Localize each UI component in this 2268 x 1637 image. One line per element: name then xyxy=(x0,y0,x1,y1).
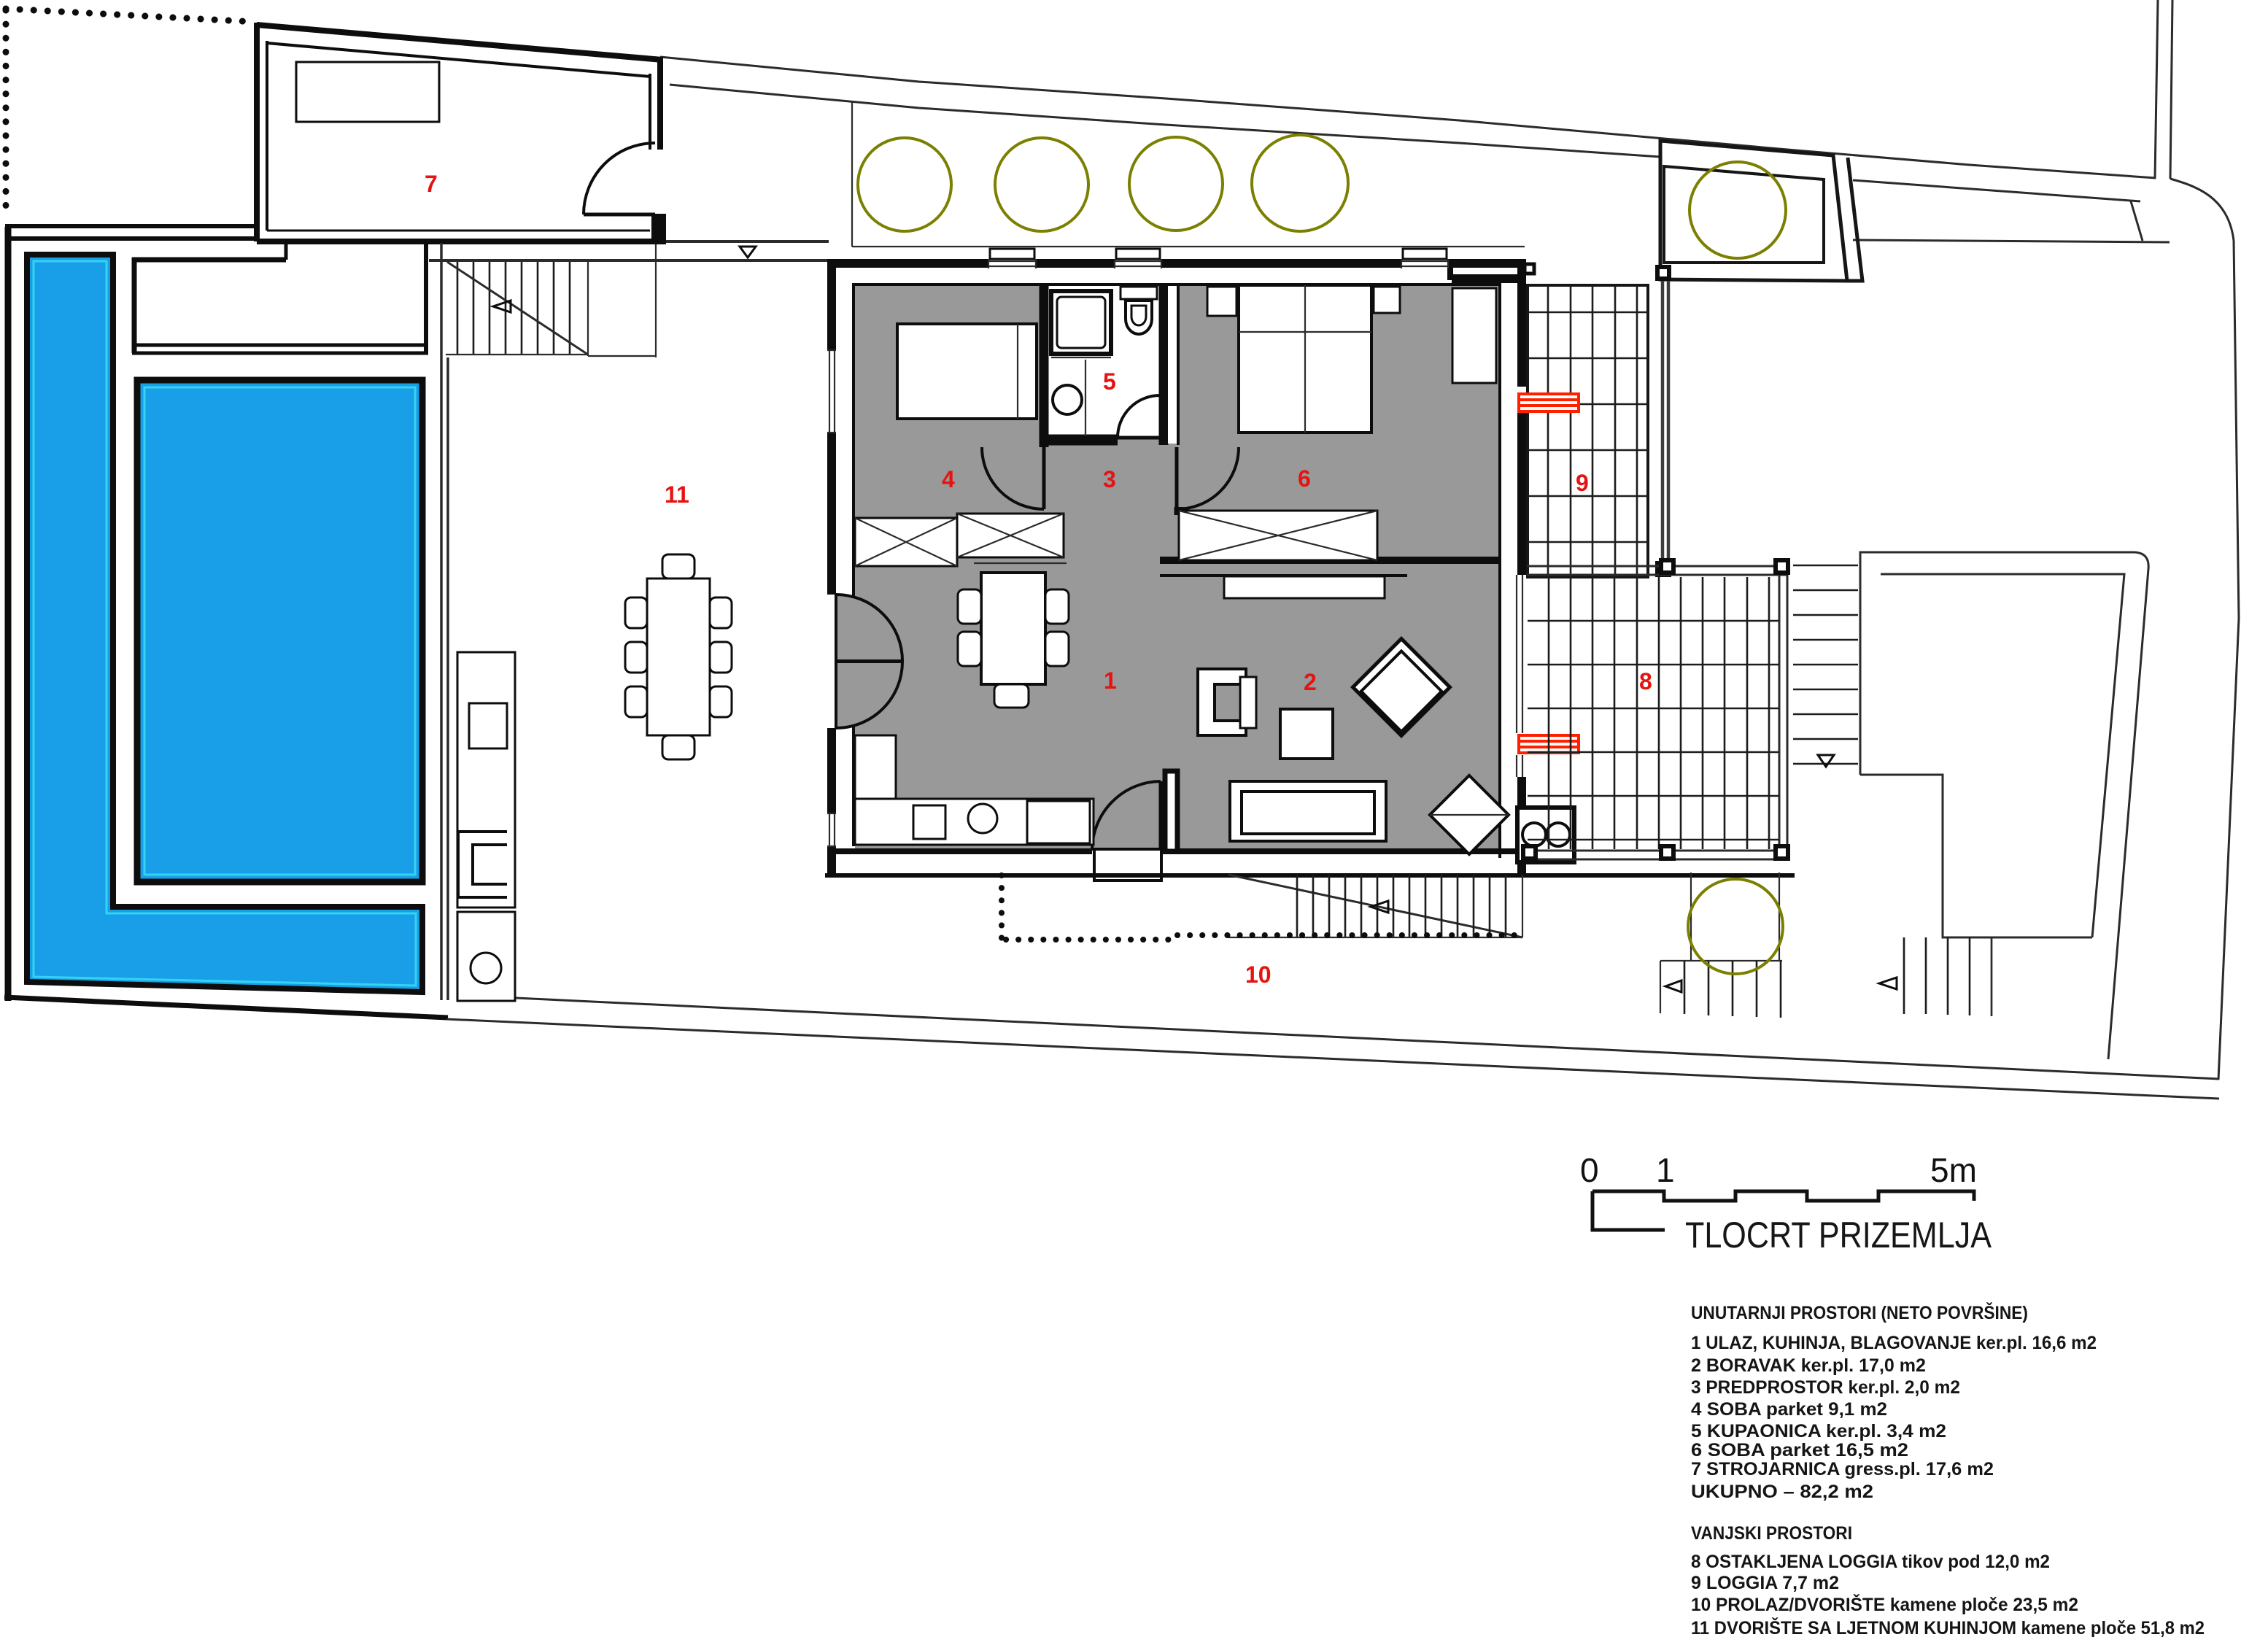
svg-text:11 DVORIŠTE SA LJETNOM KUHINJO: 11 DVORIŠTE SA LJETNOM KUHINJOM kamene p… xyxy=(1691,1617,2205,1637)
svg-text:9 LOGGIA 7,7 m2: 9 LOGGIA 7,7 m2 xyxy=(1691,1573,1839,1593)
svg-text:6: 6 xyxy=(1298,465,1311,492)
svg-text:1: 1 xyxy=(1104,667,1117,694)
svg-text:2: 2 xyxy=(1304,669,1317,695)
svg-text:11: 11 xyxy=(665,481,689,508)
svg-text:4: 4 xyxy=(942,466,955,492)
svg-text:UKUPNO – 82,2 m2: UKUPNO – 82,2 m2 xyxy=(1691,1482,1873,1502)
svg-text:8: 8 xyxy=(1639,668,1652,694)
svg-text:3: 3 xyxy=(1103,466,1116,492)
svg-text:6 SOBA parket 16,5 m2: 6 SOBA parket 16,5 m2 xyxy=(1691,1440,1908,1460)
svg-text:3 PREDPROSTOR ker.pl. 2,0 m2: 3 PREDPROSTOR ker.pl. 2,0 m2 xyxy=(1691,1377,1960,1398)
svg-text:5 KUPAONICA ker.pl. 3,4 m2: 5 KUPAONICA ker.pl. 3,4 m2 xyxy=(1691,1421,1946,1441)
svg-text:7 STROJARNICA gress.pl. 17,6 m: 7 STROJARNICA gress.pl. 17,6 m2 xyxy=(1691,1459,1994,1479)
svg-text:10 PROLAZ/DVORIŠTE kamene ploč: 10 PROLAZ/DVORIŠTE kamene ploče 23,5 m2 xyxy=(1691,1593,2078,1615)
svg-text:9: 9 xyxy=(1576,470,1589,496)
svg-text:1 ULAZ, KUHINJA, BLAGOVANJE ke: 1 ULAZ, KUHINJA, BLAGOVANJE ker.pl. 16,6… xyxy=(1691,1333,2097,1353)
svg-text:1: 1 xyxy=(1656,1151,1675,1189)
svg-text:0: 0 xyxy=(1580,1151,1599,1189)
svg-text:2 BORAVAK ker.pl. 17,0 m2: 2 BORAVAK ker.pl. 17,0 m2 xyxy=(1691,1355,1926,1376)
svg-text:TLOCRT PRIZEMLJA: TLOCRT PRIZEMLJA xyxy=(1685,1215,1992,1255)
svg-text:UNUTARNJI PROSTORI (NETO POVRŠ: UNUTARNJI PROSTORI (NETO POVRŠINE) xyxy=(1691,1301,2028,1323)
svg-text:4 SOBA parket 9,1 m2: 4 SOBA parket 9,1 m2 xyxy=(1691,1399,1887,1420)
svg-text:5m: 5m xyxy=(1930,1151,1977,1189)
svg-text:VANJSKI PROSTORI: VANJSKI PROSTORI xyxy=(1691,1523,1852,1544)
svg-text:8 OSTAKLJENA LOGGIA tikov pod: 8 OSTAKLJENA LOGGIA tikov pod 12,0 m2 xyxy=(1691,1552,2050,1572)
svg-text:7: 7 xyxy=(425,171,438,197)
svg-text:5: 5 xyxy=(1103,368,1116,395)
svg-text:10: 10 xyxy=(1245,961,1272,988)
